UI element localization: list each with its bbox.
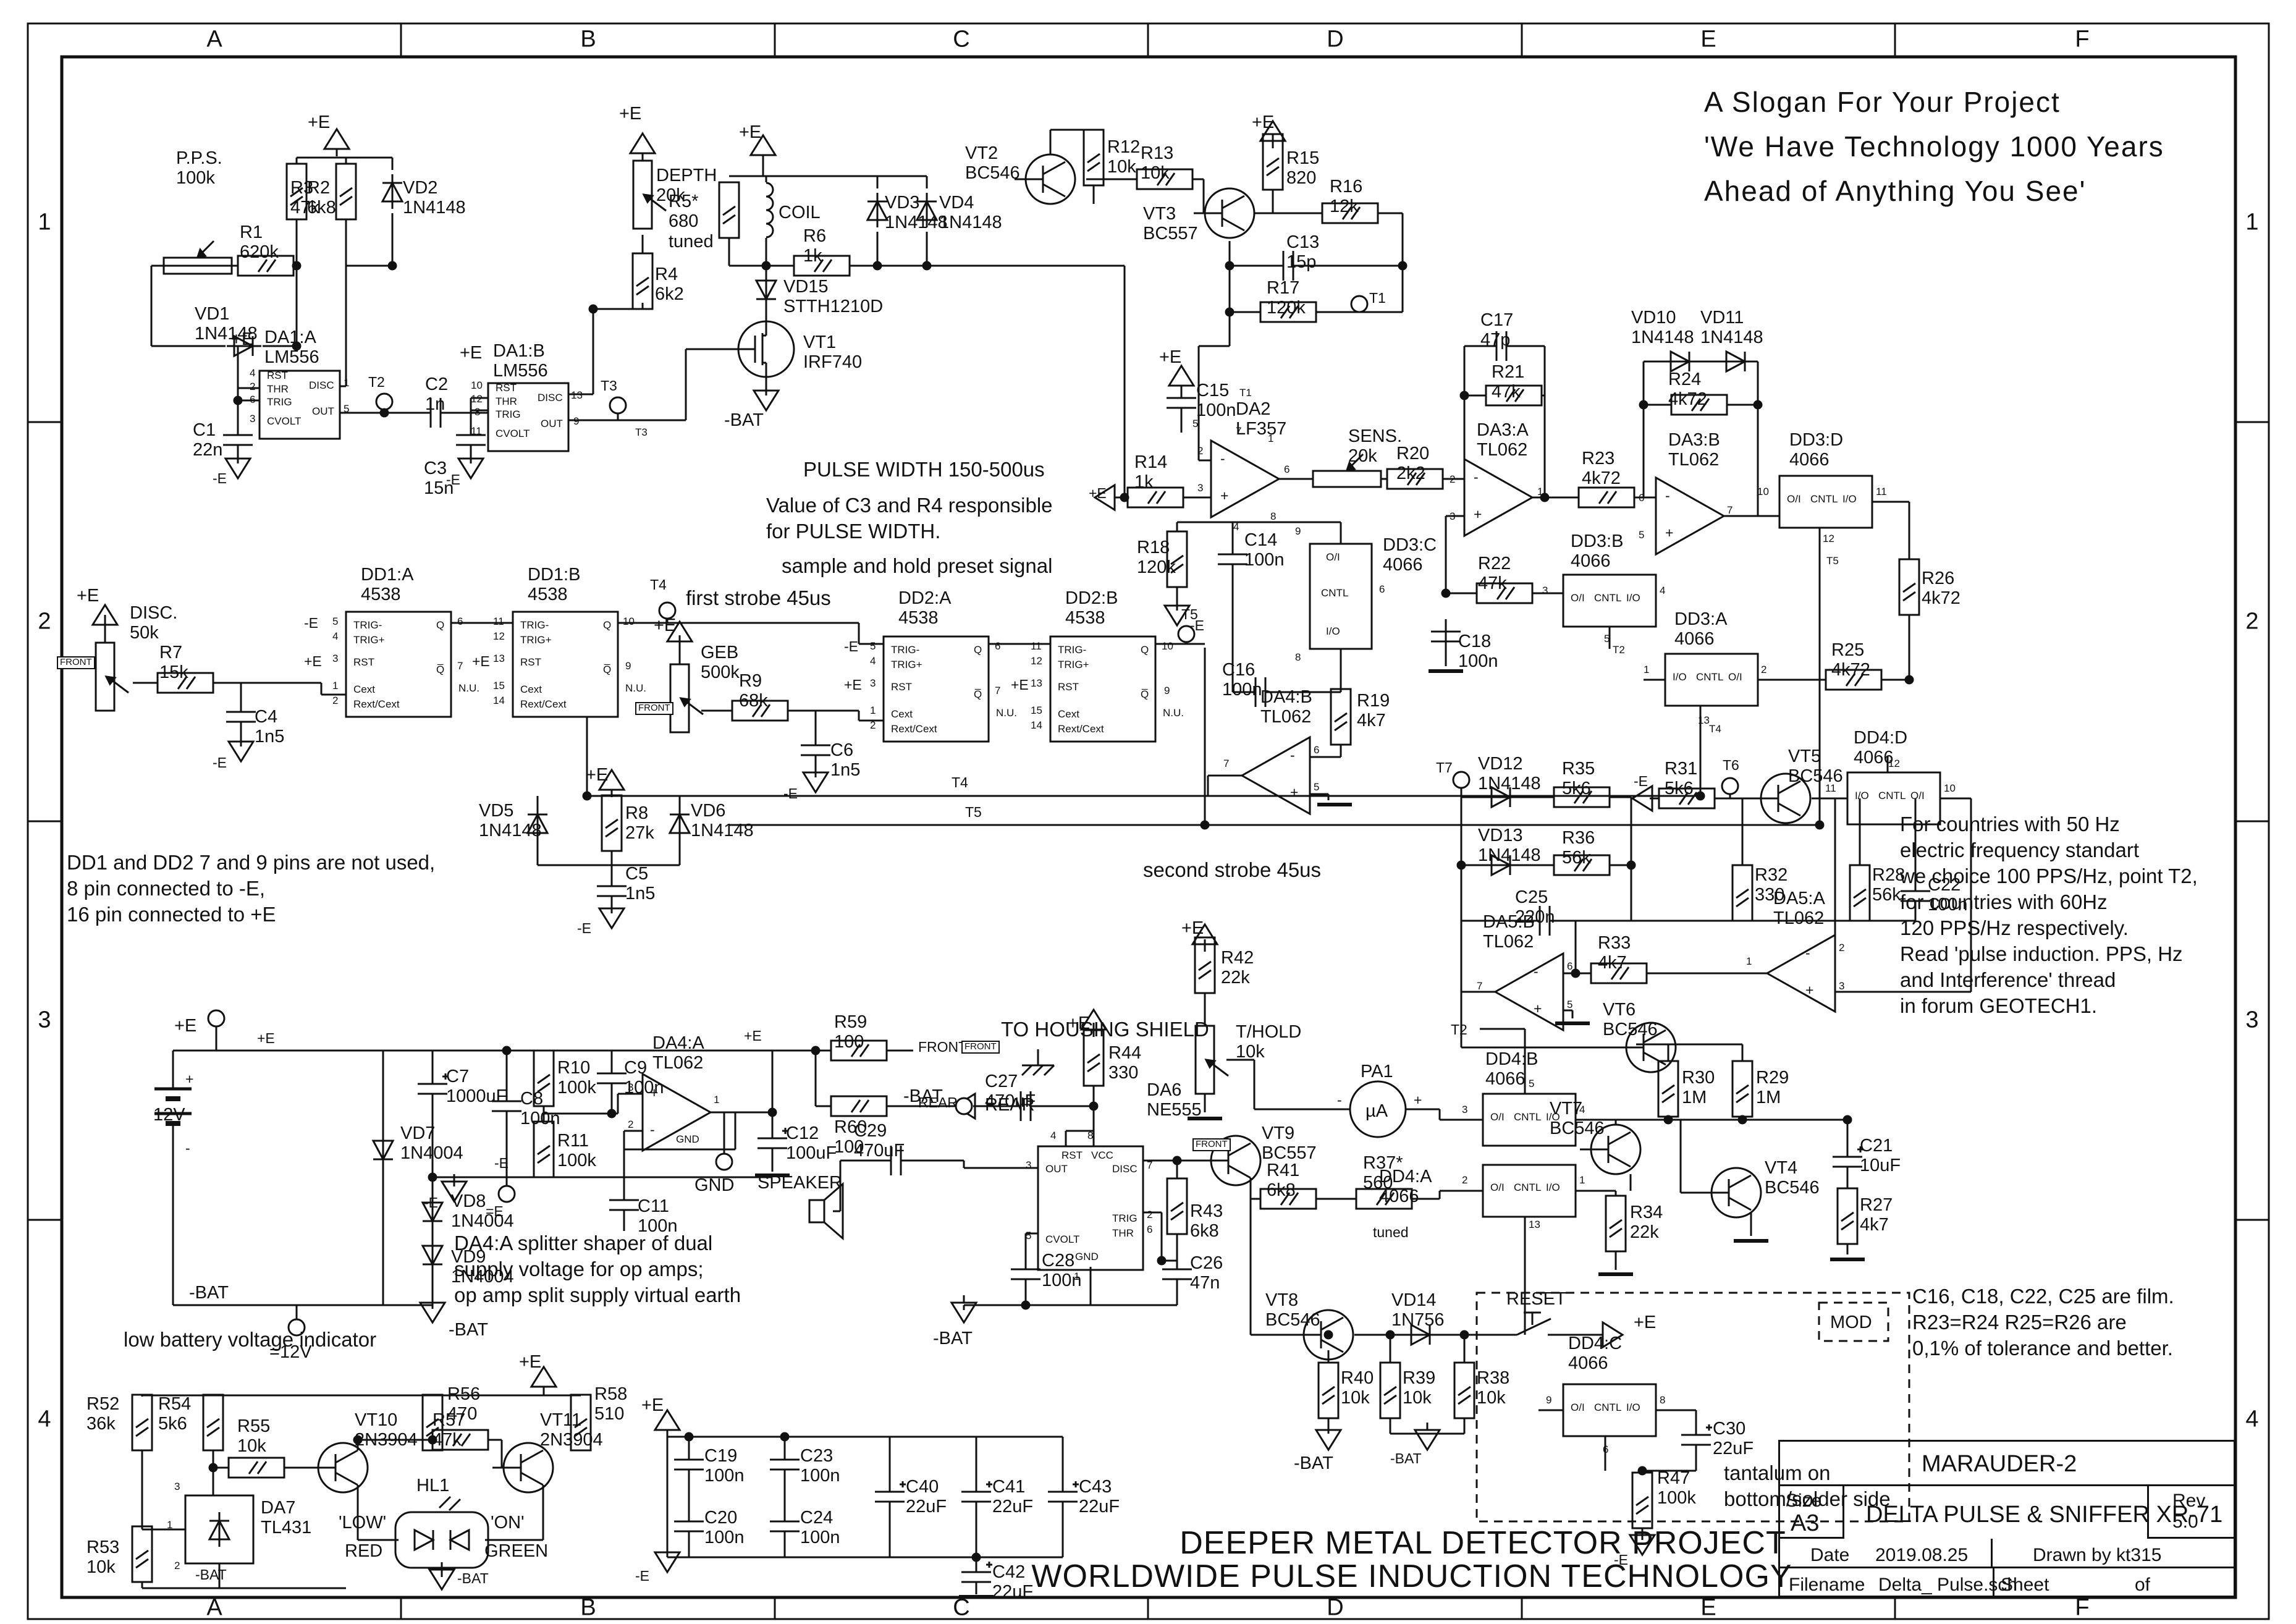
schematic-text: -BAT: [195, 1567, 227, 1583]
schematic-text: I/O: [1326, 625, 1340, 637]
schematic-text: +: [1220, 488, 1228, 504]
schematic-text: -: [1665, 488, 1670, 504]
schematic-text: 9: [625, 660, 631, 672]
schematic-text: 2: [1147, 1209, 1152, 1220]
schematic-text: 2: [870, 719, 876, 731]
schematic-text: 12: [471, 393, 483, 405]
schematic-text: -E: [213, 471, 227, 487]
schematic-text: 7: [457, 660, 463, 672]
schematic-text: DD3:B 4066: [1571, 531, 1623, 572]
schematic-text: O/I: [1490, 1111, 1505, 1123]
schematic-text: I/O: [1842, 493, 1857, 505]
schematic-text: R8 27k: [625, 803, 654, 844]
schematic-text: R34 22k: [1630, 1203, 1663, 1243]
schematic-text: RST: [267, 370, 288, 381]
zone-number: 1: [38, 209, 51, 236]
schematic-text: DD4:C 4066: [1568, 1334, 1622, 1374]
schematic-text: -: [1220, 451, 1225, 467]
schematic-text: MOD: [1830, 1313, 1872, 1332]
schematic-text: 1: [1268, 433, 1273, 444]
schematic-text: GND: [676, 1133, 699, 1145]
schematic-text: I/O: [1673, 671, 1687, 683]
schematic-text: -E: [213, 755, 227, 771]
schematic-text: C43 22uF: [1079, 1477, 1120, 1517]
schematic-text: 2: [1839, 942, 1844, 954]
schematic-text: sample and hold preset signal: [782, 555, 1052, 578]
schematic-text: DD1 and DD2 7 and 9 pins are not used,: [67, 852, 435, 874]
zone-letter: A: [206, 1595, 222, 1622]
schematic-text: Rext/Cext: [891, 723, 937, 735]
schematic-text: R17 120k: [1267, 278, 1306, 318]
schematic-text: T5: [1826, 555, 1839, 567]
schematic-text: R7 15k: [159, 643, 188, 683]
schematic-text: DISC: [309, 379, 334, 391]
schematic-text: 2: [250, 381, 255, 392]
schematic-text: R19 4k7: [1357, 691, 1390, 731]
schematic-text: FRONT: [57, 656, 95, 669]
schematic-text: 8: [475, 406, 480, 418]
schematic-text: VT9 BC557: [1262, 1123, 1317, 1164]
schematic-text: R55 10k: [237, 1416, 270, 1457]
schematic-text: +E: [744, 1028, 762, 1044]
schematic-text: R33 4k7: [1598, 933, 1631, 973]
schematic-text: VD5 1N4148: [479, 801, 542, 841]
zone-number: 2: [2245, 609, 2258, 635]
schematic-text: +E: [1181, 918, 1204, 938]
schematic-text: THR: [496, 395, 517, 407]
schematic-text: R52 36k: [87, 1394, 119, 1434]
schematic-text: 5: [332, 615, 338, 627]
schematic-text: T1: [1239, 387, 1252, 399]
schematic-text: VCC: [1091, 1149, 1113, 1161]
schematic-text: 6: [1314, 744, 1319, 756]
schematic-text: 12: [1888, 758, 1900, 769]
schematic-text: op amp split supply virtual earth: [454, 1284, 741, 1307]
schematic-text: 6: [250, 394, 255, 405]
schematic-text: CNTL: [1514, 1182, 1541, 1193]
schematic-text: 13: [1698, 714, 1710, 726]
schematic-text: C14 100n: [1244, 530, 1285, 570]
schematic-text: 5: [344, 403, 349, 415]
schematic-text: TRIG: [496, 408, 521, 420]
schematic-text: for countries with 60Hz: [1900, 891, 2108, 914]
schematic-text: T4: [650, 577, 667, 593]
schematic-text: 6: [995, 640, 1000, 652]
zone-letter: B: [580, 27, 596, 53]
schematic-text: 9: [573, 415, 579, 427]
schematic-text: DA1:B LM556: [493, 341, 548, 381]
schematic-text: Value of C3 and R4 responsible: [766, 494, 1053, 517]
schematic-text: 11: [1031, 640, 1042, 652]
schematic-text: R22 47k: [1478, 554, 1511, 594]
schematic-text: R21 47k: [1492, 362, 1524, 402]
schematic-text: R53 10k: [87, 1537, 119, 1578]
schematic-text: CVOLT: [1045, 1233, 1079, 1245]
schematic-text: and Interference' thread: [1900, 969, 2116, 992]
zone-letter: E: [1700, 1595, 1716, 1622]
schematic-text: N.U.: [625, 682, 646, 694]
schematic-text: 6: [457, 615, 463, 627]
schematic-text: PULSE WIDTH 150-500us: [803, 459, 1045, 481]
schematic-text: C16, C18, C22, C25 are film.: [1912, 1285, 2174, 1308]
schematic-text: CNTL: [1514, 1111, 1541, 1123]
schematic-text: 13: [1031, 677, 1042, 689]
zone-letter: A: [206, 27, 222, 53]
schematic-text: THR: [267, 383, 289, 395]
schematic-text: 3: [332, 653, 338, 664]
schematic-text: R1 620k: [240, 222, 279, 263]
schematic-text: T2: [1451, 1022, 1467, 1038]
schematic-text: C29 470uF: [854, 1121, 905, 1161]
schematic-text: C21 10uF: [1860, 1136, 1901, 1176]
schematic-text: T5: [965, 805, 982, 821]
schematic-text: 'We Have Technology 1000 Years: [1704, 131, 2164, 163]
schematic-text: 4: [1050, 1130, 1056, 1141]
schematic-text: TRIG-: [1058, 644, 1086, 656]
schematic-text: R18 120k: [1137, 538, 1176, 578]
schematic-text: 3: [1026, 1159, 1031, 1171]
schematic-text: T3: [601, 378, 617, 394]
schematic-text: R3 47k: [290, 178, 319, 218]
schematic-text: Q̅: [974, 688, 982, 700]
schematic-text: 5: [1567, 999, 1572, 1010]
schematic-text: C19 100n: [704, 1446, 745, 1486]
schematic-text: R5* 680 tuned: [669, 192, 714, 252]
schematic-text: Rext/Cext: [1058, 723, 1104, 735]
schematic-text: 8: [1087, 1130, 1093, 1141]
zone-number: 4: [38, 1406, 51, 1433]
schematic-text: Cext: [1058, 708, 1079, 720]
schematic-text: 10: [471, 379, 483, 391]
schematic-text: +E: [77, 586, 99, 606]
schematic-text: VD11 1N4148: [1700, 308, 1763, 348]
schematic-text: TRIG+: [353, 634, 385, 646]
schematic-text: 3: [628, 1081, 633, 1093]
schematic-text: 7: [1727, 504, 1733, 516]
schematic-text: 7: [1147, 1159, 1152, 1171]
schematic-text: TRIG-: [891, 644, 919, 656]
schematic-text: PA1: [1361, 1062, 1393, 1081]
schematic-text: DA4:B TL062: [1260, 687, 1312, 727]
schematic-text: OUT: [312, 405, 334, 417]
schematic-text: -BAT: [1294, 1453, 1333, 1473]
schematic-text: DA5:B TL062: [1483, 912, 1535, 952]
schematic-text: -: [650, 1122, 655, 1138]
schematic-text: 6: [1639, 492, 1644, 504]
schematic-text: TRIG: [267, 396, 292, 408]
schematic-text: R29 1M: [1756, 1068, 1789, 1108]
schematic-text: 10: [1757, 486, 1769, 497]
schematic-text: T2: [368, 374, 385, 391]
schematic-text: CNTL: [1594, 592, 1621, 604]
schematic-text: +E: [1068, 1013, 1090, 1033]
rev-value: 5.0: [2172, 1512, 2198, 1533]
schematic-text: 2: [1462, 1174, 1467, 1186]
size-value: A3: [1791, 1510, 1819, 1537]
schematic-text: VD4 1N4148: [939, 193, 1002, 233]
schematic-text: RST: [1061, 1149, 1083, 1161]
schematic-text: +: [1665, 525, 1673, 541]
schematic-text: DD1:B 4538: [528, 565, 580, 605]
schematic-text: -BAT: [903, 1086, 943, 1106]
schematic-text: VD13 1N4148: [1478, 826, 1541, 866]
schematic-text: 1: [1579, 1174, 1585, 1186]
schematic-text: I/O: [1626, 592, 1640, 604]
schematic-text: +E: [844, 677, 862, 693]
date-label: Date: [1810, 1545, 1849, 1566]
schematic-text: 9: [1164, 685, 1170, 696]
schematic-text: 5: [870, 640, 876, 652]
schematic-text: HL1: [416, 1476, 449, 1495]
schematic-text: TRIG-: [520, 619, 549, 631]
schematic-text: R4 6k2: [655, 264, 684, 305]
schematic-text: C7 1000uF: [446, 1067, 507, 1107]
schematic-text: RST: [1058, 681, 1079, 693]
schematic-text: Q̅: [1141, 688, 1149, 700]
zone-letter: E: [1700, 27, 1716, 53]
schematic-text: 11: [471, 425, 482, 437]
schematic-text: R9 68k: [739, 671, 768, 711]
schematic-text: 120 PPS/Hz respectively.: [1900, 917, 2129, 940]
schematic-text: +E: [739, 122, 761, 142]
schematic-text: 3: [1450, 510, 1455, 522]
schematic-text: -E: [304, 615, 318, 632]
zone-number: 3: [38, 1007, 51, 1034]
schematic-text: 8: [1270, 510, 1276, 522]
schematic-text: R38 10k: [1477, 1368, 1509, 1408]
schematic-text: 'ON': [491, 1513, 525, 1533]
schematic-text: +E: [586, 765, 608, 785]
schematic-text: DD2:A 4538: [898, 588, 951, 628]
schematic-text: 6: [1379, 583, 1385, 595]
schematic-text: DA4:A splitter shaper of dual: [454, 1232, 712, 1255]
schematic-text: supply voltage for op amps;: [454, 1258, 704, 1281]
schematic-text: R47 100k: [1657, 1468, 1696, 1508]
schematic-text: -E: [635, 1568, 649, 1584]
schematic-text: Q: [974, 644, 982, 656]
schematic-text: RST: [891, 681, 912, 693]
schematic-text: VT11 2N3904: [540, 1410, 603, 1450]
schematic-text: -BAT: [449, 1320, 488, 1340]
schematic-text: FRONT: [918, 1039, 967, 1055]
schematic-text: TRIG-: [353, 619, 382, 631]
schematic-text: 11: [493, 615, 504, 627]
schematic-text: RST: [520, 656, 541, 668]
schematic-text: -E: [424, 1195, 438, 1211]
schematic-text: T/HOLD 10k: [1236, 1022, 1301, 1062]
schematic-text: Cext: [520, 683, 542, 695]
schematic-text: C41 22uF: [992, 1477, 1033, 1517]
schematic-text: C6 1n5: [830, 740, 860, 780]
schematic-text: DISC: [538, 392, 563, 404]
schematic-text: R16 12k: [1330, 177, 1362, 217]
schematic-text: 4: [250, 367, 255, 379]
schematic-text: C4 1n5: [255, 707, 284, 747]
schematic-text: 0,1% of tolerance and better.: [1912, 1337, 2173, 1360]
schematic-text: +: [1534, 1001, 1542, 1017]
schematic-text: Ahead of Anything You See': [1704, 176, 2086, 208]
schematic-text: VT6 BC546: [1603, 1000, 1658, 1040]
schematic-text: P.P.S. 100k: [176, 148, 222, 188]
size-label: Size: [1786, 1491, 1821, 1512]
schematic-text: O/I: [1490, 1182, 1505, 1193]
schematic-text: RST: [353, 656, 374, 668]
schematic-text: -BAT: [189, 1283, 229, 1303]
schematic-text: Q̅: [603, 664, 611, 675]
schematic-text: 10: [623, 615, 635, 627]
schematic-text: VT4 BC546: [1765, 1158, 1820, 1198]
schematic-text: DA7 TL431: [261, 1498, 311, 1538]
schematic-text: R13 10k: [1141, 143, 1173, 184]
schematic-text: R10 100k: [557, 1058, 596, 1098]
schematic-text: TRIG+: [891, 659, 922, 670]
schematic-text: R27 4k7: [1860, 1195, 1893, 1235]
schematic-text: T6: [1723, 758, 1739, 774]
schematic-text: +: [1474, 507, 1482, 523]
schematic-text: Q: [603, 619, 611, 631]
schematic-text: 15: [1031, 704, 1042, 716]
schematic-text: 1: [332, 680, 338, 691]
schematic-text: 12V: [153, 1105, 185, 1125]
schematic-text: C30 22uF: [1713, 1419, 1754, 1459]
schematic-text: 1: [167, 1519, 172, 1531]
schematic-text: R39 10k: [1403, 1368, 1435, 1408]
schematic-text: 3: [1839, 980, 1844, 992]
schematic-text: 1: [1746, 955, 1752, 967]
schematic-text: 2: [1761, 664, 1766, 675]
schematic-text: 7: [995, 685, 1000, 696]
schematic-text: T5: [1181, 607, 1198, 623]
schematic-text: SPEAKER: [758, 1173, 842, 1193]
schematic-text: CNTL: [1594, 1402, 1621, 1413]
date-value: 2019.08.25: [1875, 1545, 1968, 1566]
schematic-text: 1: [870, 704, 876, 716]
schematic-text: DA5:A TL062: [1773, 889, 1825, 929]
schematic-text: 5: [1026, 1230, 1031, 1241]
schematic-text: CVOLT: [496, 428, 530, 439]
schematic-text: C18 100n: [1458, 632, 1498, 672]
doc-title: DELTA PULSE & SNIFFER XR-71: [1866, 1502, 2222, 1528]
schematic-text: +: [650, 1085, 658, 1101]
zone-letter: F: [2075, 27, 2089, 53]
schematic-text: R31 5k6: [1665, 759, 1697, 799]
schematic-text: VD3 1N4148: [885, 193, 948, 233]
schematic-text: 3: [250, 413, 255, 425]
schematic-text: -E: [494, 1156, 509, 1172]
schematic-text: GND: [694, 1175, 734, 1195]
schematic-text: A Slogan For Your Project: [1704, 87, 2061, 119]
schematic-text: -E: [844, 639, 858, 655]
zone-letter: B: [580, 1595, 596, 1622]
schematic-text: RST: [496, 382, 517, 394]
schematic-text: Rext/Cext: [353, 698, 400, 710]
schematic-text: 5: [1314, 781, 1319, 793]
schematic-text: FRONT: [961, 1041, 1000, 1054]
schematic-text: Rext/Cext: [520, 698, 567, 710]
schematic-text: 4: [870, 655, 876, 667]
schematic-text: -: [1534, 964, 1538, 980]
schematic-text: -E: [577, 921, 591, 937]
schematic-text: +E: [472, 654, 490, 670]
schematic-text: +E: [641, 1395, 664, 1415]
schematic-text: VD15 STTH1210D: [783, 277, 883, 317]
schematic-text: O/I: [1571, 592, 1585, 604]
schematic-text: 13: [493, 653, 505, 664]
schematic-text: C26 47n: [1190, 1253, 1223, 1293]
schematic-text: -BAT: [457, 1571, 489, 1587]
schematic-text: +E: [304, 654, 322, 670]
schematic-text: N.U.: [996, 707, 1017, 719]
zone-letter: C: [953, 27, 969, 53]
schematic-text: VT1 IRF740: [803, 332, 862, 373]
schematic-text: 3: [1542, 585, 1548, 596]
schematic-text: T7: [1436, 760, 1453, 776]
schematic-text: -BAT: [724, 410, 764, 430]
schematic-text: VD6 1N4148: [691, 801, 754, 841]
schematic-text: 16 pin connected to +E: [67, 903, 276, 926]
schematic-text: FRONT: [635, 702, 673, 715]
filename-label: Filename: [1789, 1575, 1865, 1596]
schematic-text: +E: [460, 343, 482, 363]
schematic-text: 2: [1450, 473, 1455, 485]
schematic-text: 11: [1876, 486, 1887, 497]
schematic-text: SENS. 20k: [1348, 426, 1402, 467]
schematic-text: 6: [1147, 1224, 1152, 1235]
schematic-text: VT2 BC546: [965, 143, 1020, 184]
schematic-text: in forum GEOTECH1.: [1900, 995, 2097, 1018]
schematic-text: DA2 LF357: [1236, 399, 1286, 439]
schematic-text: R23=R24 R25=R26 are: [1912, 1311, 2127, 1334]
schematic-text: O/I: [1571, 1402, 1585, 1413]
schematic-text: +E: [1159, 347, 1181, 367]
schematic-text: 5: [1604, 633, 1610, 645]
sheet-label: Sheet: [2001, 1575, 2049, 1596]
schematic-text: 14: [493, 695, 505, 706]
schematic-text: VD2 1N4148: [403, 178, 466, 218]
zone-number: 2: [38, 609, 51, 635]
schematic-text: we choice 100 PPS/Hz, point T2,: [1900, 865, 2198, 888]
schematic-text: I/O: [1546, 1182, 1560, 1193]
schematic-text: N.U.: [458, 682, 479, 694]
schematic-text: R40 10k: [1341, 1368, 1374, 1408]
schematic-text: CNTL: [1696, 671, 1723, 683]
zone-letter: D: [1327, 27, 1343, 53]
schematic-text: N.U.: [1163, 707, 1184, 719]
schematic-text: +: [1414, 1093, 1422, 1109]
schematic-text: T1: [1369, 290, 1386, 307]
schematic-text: C42 22uF: [992, 1562, 1033, 1602]
schematic-text: 2: [332, 695, 338, 706]
schematic-text: 3: [1197, 482, 1203, 494]
filename-value: Delta_ Pulse.sch: [1878, 1575, 2017, 1596]
schematic-text: 5: [1192, 418, 1198, 429]
schematic-text: -E: [783, 786, 798, 802]
schematic-text: -E: [1634, 774, 1648, 790]
schematic-text: 13: [571, 389, 583, 401]
schematic-text: 1: [1644, 664, 1649, 675]
drawn-by: Drawn by kt315: [2033, 1545, 2161, 1566]
schematic-text: 8: [1660, 1394, 1665, 1406]
schematic-text: 13: [1529, 1219, 1540, 1230]
schematic-text: VD14 1N756: [1391, 1290, 1444, 1330]
schematic-text: THR: [1112, 1227, 1134, 1239]
zone-letter: C: [953, 1595, 969, 1622]
schematic-text: C2 1n: [425, 374, 448, 415]
schematic-text: +E: [1252, 112, 1274, 132]
project-name: MARAUDER-2: [1922, 1451, 2077, 1478]
schematic-text: T2: [1613, 644, 1625, 656]
schematic-text: R59 100: [834, 1012, 867, 1052]
